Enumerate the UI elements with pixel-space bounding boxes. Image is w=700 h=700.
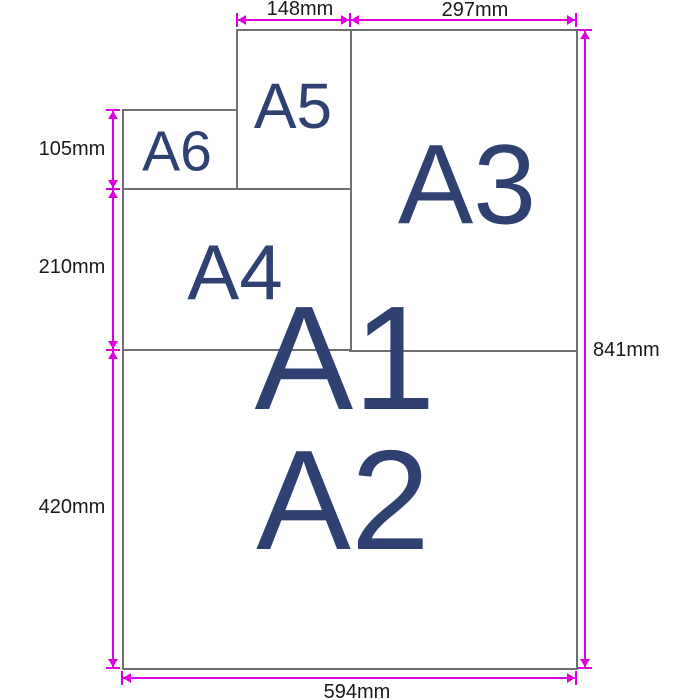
dim-arrowhead — [567, 15, 575, 25]
dim-arrowhead — [108, 659, 118, 667]
dim-arrowhead — [238, 15, 246, 25]
dimension-line-210mm — [112, 189, 114, 350]
paper-label-a2: A2 — [256, 430, 430, 572]
paper-size-diagram: 148mm 297mm 105mm 210mm 420mm 841mm 594m… — [0, 0, 700, 700]
dimension-line-105mm — [112, 110, 114, 189]
dim-arrowhead — [580, 659, 590, 667]
dim-tick — [575, 671, 577, 685]
dimension-label-297mm: 297mm — [442, 0, 509, 20]
dim-arrowhead — [123, 673, 131, 683]
paper-label-a3: A3 — [398, 129, 536, 242]
dim-tick — [106, 667, 120, 669]
dim-arrowhead — [580, 31, 590, 39]
dim-arrowhead — [108, 180, 118, 188]
dimension-label-210mm: 210mm — [39, 257, 106, 277]
paper-label-a6: A6 — [142, 124, 212, 181]
dimension-label-594mm: 594mm — [324, 682, 391, 700]
dim-arrowhead — [341, 15, 349, 25]
dim-arrowhead — [108, 341, 118, 349]
dimension-line-420mm — [112, 350, 114, 668]
dim-tick — [575, 13, 577, 27]
dimension-line-594mm — [122, 677, 576, 679]
dimension-line-841mm — [584, 30, 586, 668]
dim-arrowhead — [567, 673, 575, 683]
dimension-label-105mm: 105mm — [39, 139, 106, 159]
dimension-label-841mm: 841mm — [593, 340, 660, 360]
dim-tick — [578, 667, 592, 669]
dim-arrowhead — [351, 15, 359, 25]
dim-arrowhead — [108, 351, 118, 359]
paper-label-a5: A5 — [254, 74, 332, 138]
dim-arrowhead — [108, 111, 118, 119]
dimension-label-148mm: 148mm — [267, 0, 334, 19]
dim-arrowhead — [108, 190, 118, 198]
dimension-label-420mm: 420mm — [39, 497, 106, 517]
paper-label-a1: A1 — [254, 285, 435, 433]
